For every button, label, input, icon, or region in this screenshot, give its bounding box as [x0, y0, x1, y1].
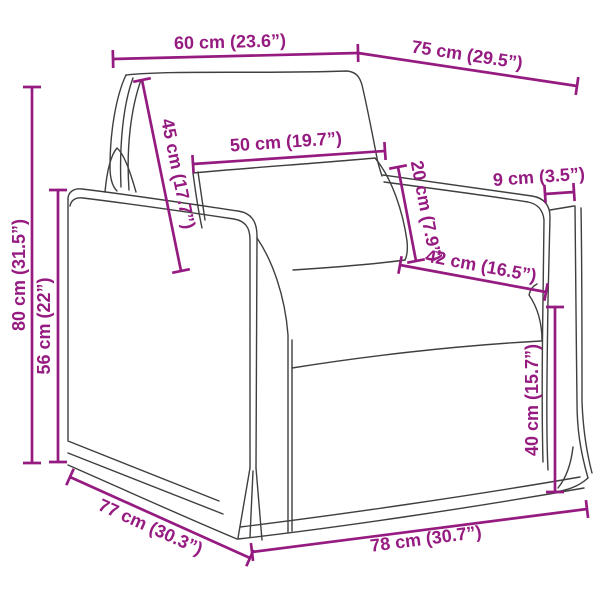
left-armrest-outer-edge [68, 189, 257, 468]
back-cushion-pleat-1 [121, 78, 133, 187]
overall-height-label: 80 cm (31.5”) [9, 219, 29, 331]
dimension-top-depth: 75 cm (29.5”) [358, 36, 578, 94]
dimension-arm-height: 56 cm (22”) [34, 190, 67, 462]
left-armrest-front-arc [257, 238, 288, 532]
diagram-canvas: 60 cm (23.6”) 75 cm (29.5”) 45 cm (17.7”… [0, 0, 600, 600]
dimension-pillow-width: 50 cm (19.7”) [192, 128, 385, 173]
top-width-label: 60 cm (23.6”) [174, 30, 287, 53]
base-depth-label: 77 cm (30.3”) [95, 495, 205, 559]
back-cushion-left-edge [110, 75, 126, 191]
arm-width-label: 9 cm (3.5”) [492, 164, 585, 190]
left-skirt-hem-lines [68, 441, 223, 514]
top-depth-label: 75 cm (29.5”) [410, 36, 524, 73]
pillow-width-label: 50 cm (19.7”) [229, 128, 342, 156]
dimension-seat-width: 42 cm (16.5”) [398, 246, 547, 301]
dimension-diagram: 60 cm (23.6”) 75 cm (29.5”) 45 cm (17.7”… [0, 0, 600, 600]
right-side-inner-edge [581, 208, 592, 473]
front-skirt-hem-line [240, 477, 580, 527]
dimension-base-depth: 77 cm (30.3”) [66, 469, 253, 566]
dimension-base-width: 78 cm (30.7”) [251, 500, 588, 561]
seat-bolster-curve [529, 284, 542, 341]
right-armrest-top-face [550, 206, 574, 210]
pillow-right-edge [375, 158, 407, 260]
skirt-corner-pleat [238, 468, 262, 540]
dimension-arm-width: 9 cm (3.5”) [492, 164, 585, 203]
pillow-bottom-edge [293, 260, 405, 270]
dimension-top-width: 60 cm (23.6”) [113, 30, 358, 68]
seat-height-label: 40 cm (15.7”) [522, 344, 542, 456]
left-armrest-piping [70, 198, 250, 468]
base-width-label: 78 cm (30.7”) [369, 522, 483, 556]
dimension-overall-height: 80 cm (31.5”) [9, 87, 41, 463]
dimension-back-cushion-height: 45 cm (17.7”) [133, 78, 199, 273]
seat-skirt-seam [292, 341, 541, 368]
dimension-annotations: 60 cm (23.6”) 75 cm (29.5”) 45 cm (17.7”… [9, 30, 588, 566]
pillow-top-edge [193, 158, 375, 173]
arm-height-label: 56 cm (22”) [34, 277, 54, 374]
